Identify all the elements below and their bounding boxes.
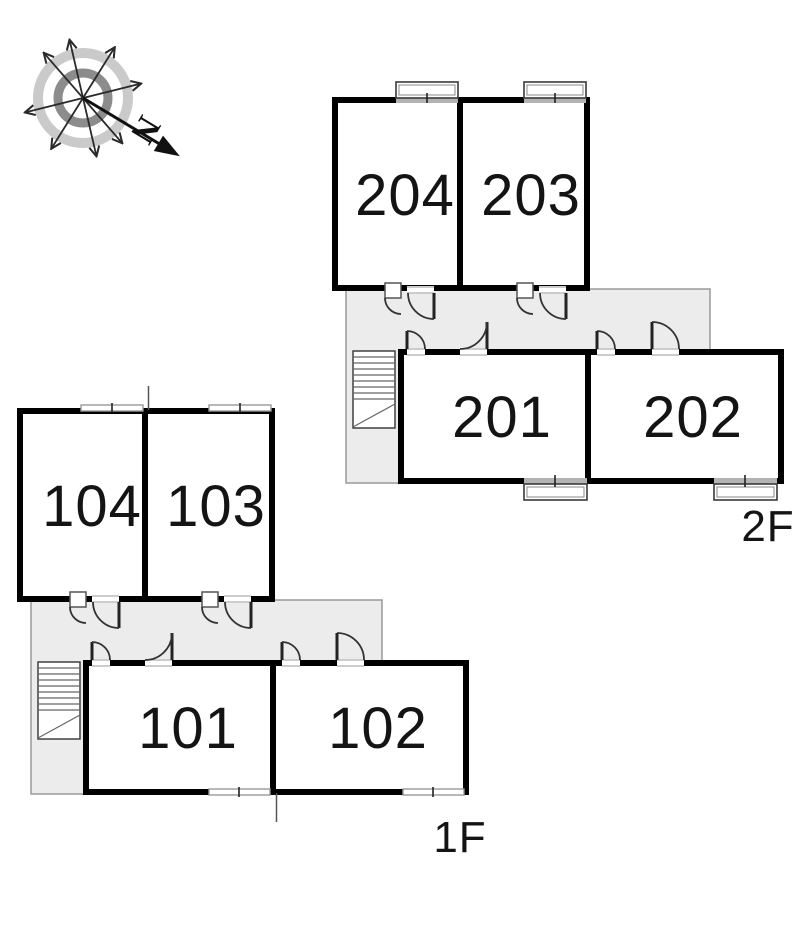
window-101 [209,787,270,797]
window-201 [524,475,587,500]
room-label-102: 102 [328,696,428,761]
floorplan-image: N [0,0,800,940]
window-202 [714,475,777,500]
stairs-icon-1f [38,662,80,739]
floor-label-2f: 2F [741,502,794,551]
floor-2f: 204 203 201 202 2F [335,82,795,551]
room-label-101: 101 [138,696,238,761]
room-label-201: 201 [452,385,552,450]
window-104 [81,403,143,413]
window-103 [209,403,271,413]
window-102 [403,787,464,797]
room-label-203: 203 [481,163,581,228]
compass-rose-icon: N [25,40,189,164]
floorplan-page: N [0,0,800,940]
window-203 [524,82,586,103]
window-204 [396,82,458,103]
room-label-104: 104 [42,474,142,539]
stairs-icon-2f [353,351,395,428]
floor-label-1f: 1F [433,813,486,862]
room-label-202: 202 [643,385,743,450]
room-label-204: 204 [355,163,455,228]
room-label-103: 103 [166,474,266,539]
